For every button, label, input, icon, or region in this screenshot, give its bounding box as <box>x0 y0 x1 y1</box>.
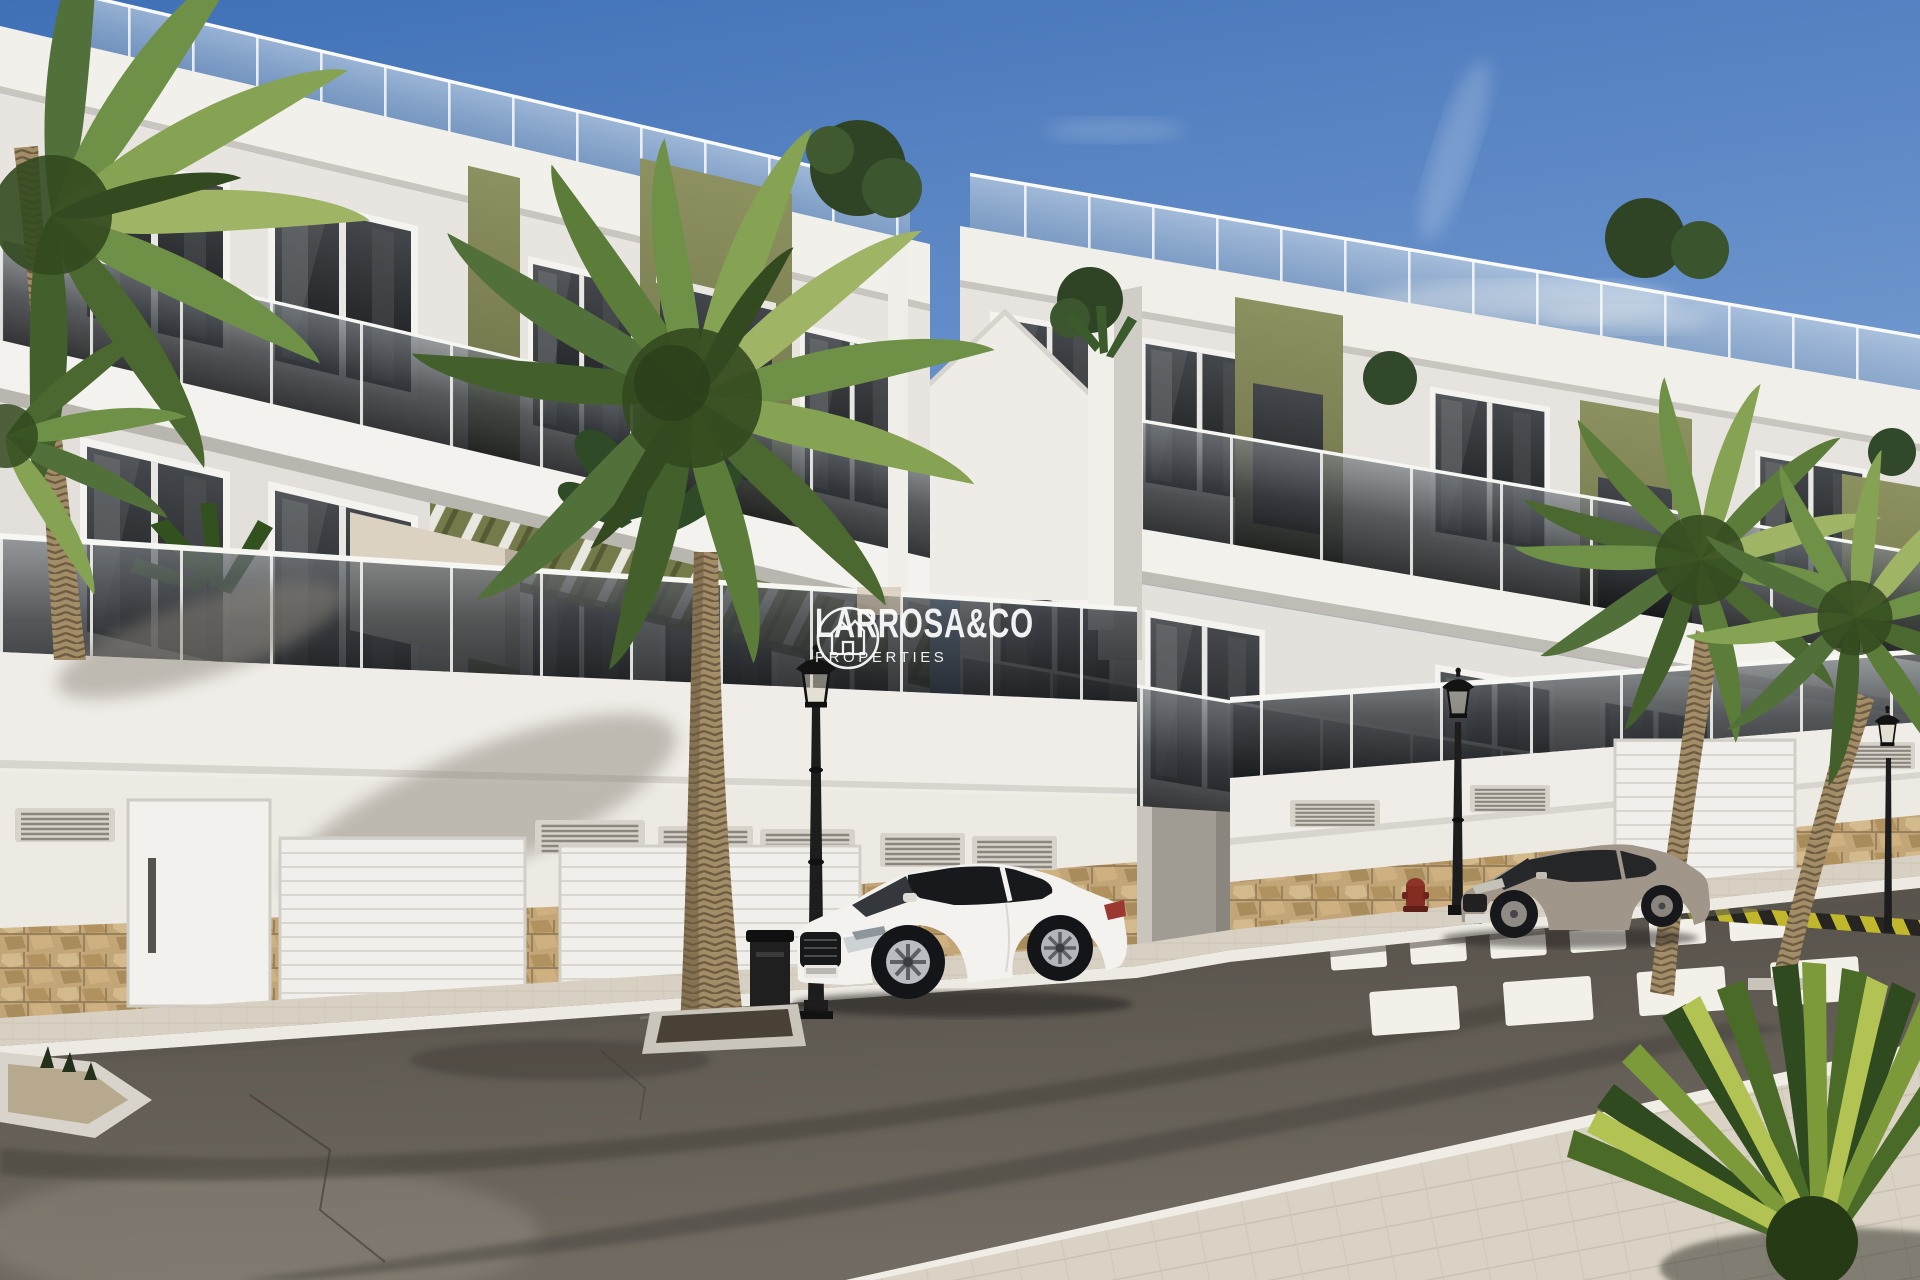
garage-door-2 <box>280 838 525 1004</box>
property-render-screenshot: LARROSA&CO PROPERTIES <box>0 0 1920 1280</box>
garage-door-1 <box>128 800 270 1006</box>
scene <box>0 0 1920 1280</box>
rear-wheel <box>1027 915 1093 981</box>
front-wheel <box>871 925 945 999</box>
